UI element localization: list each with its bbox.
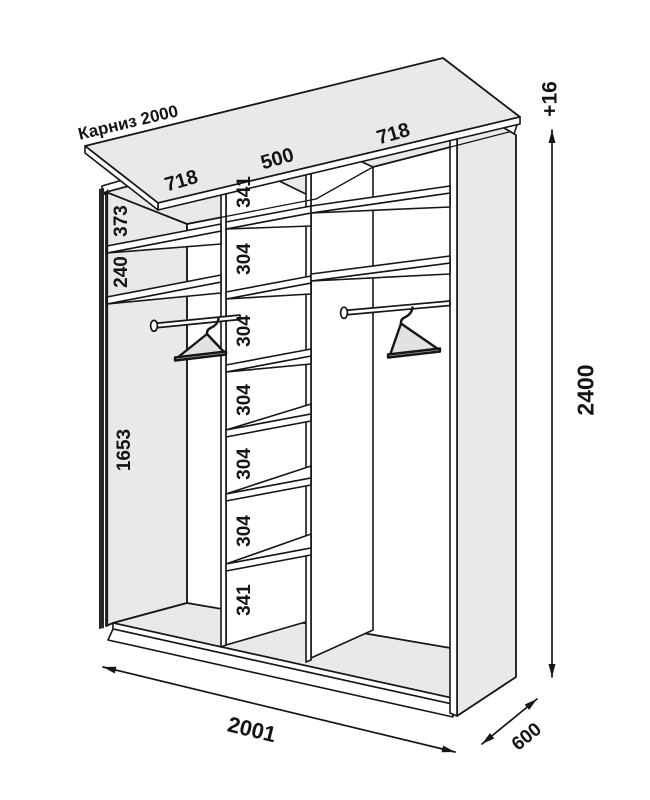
label-mid-cell-1: 341 xyxy=(234,176,255,208)
partition-2-face xyxy=(311,139,373,658)
left-panel-front-edge xyxy=(99,188,104,629)
wardrobe-assembly-diagram: Карниз 2000 718 500 718 373 240 1653 341… xyxy=(0,0,650,800)
label-width: 2001 xyxy=(225,712,278,748)
right-side-panel xyxy=(457,100,516,716)
label-mid-cell-7: 341 xyxy=(234,584,255,616)
label-mid-cell-3: 304 xyxy=(234,315,255,347)
label-left-cell-3: 1653 xyxy=(114,429,135,471)
label-mid-cell-6: 304 xyxy=(234,515,255,547)
label-mid-cell-4: 304 xyxy=(234,384,255,416)
right-panel-front-edge xyxy=(450,97,457,716)
label-left-cell-1: 373 xyxy=(111,205,132,237)
label-left-cell-2: 240 xyxy=(111,256,132,288)
label-mid-cell-5: 304 xyxy=(234,448,255,480)
right-hanger xyxy=(388,308,440,358)
label-height: 2400 xyxy=(572,364,598,415)
dim-height xyxy=(549,130,556,677)
label-mid-cell-2: 304 xyxy=(234,243,255,275)
label-height-extra: +16 xyxy=(539,81,562,117)
wardrobe-drawing: Карниз 2000 718 500 718 373 240 1653 341… xyxy=(0,0,650,800)
label-depth: 600 xyxy=(508,719,546,755)
